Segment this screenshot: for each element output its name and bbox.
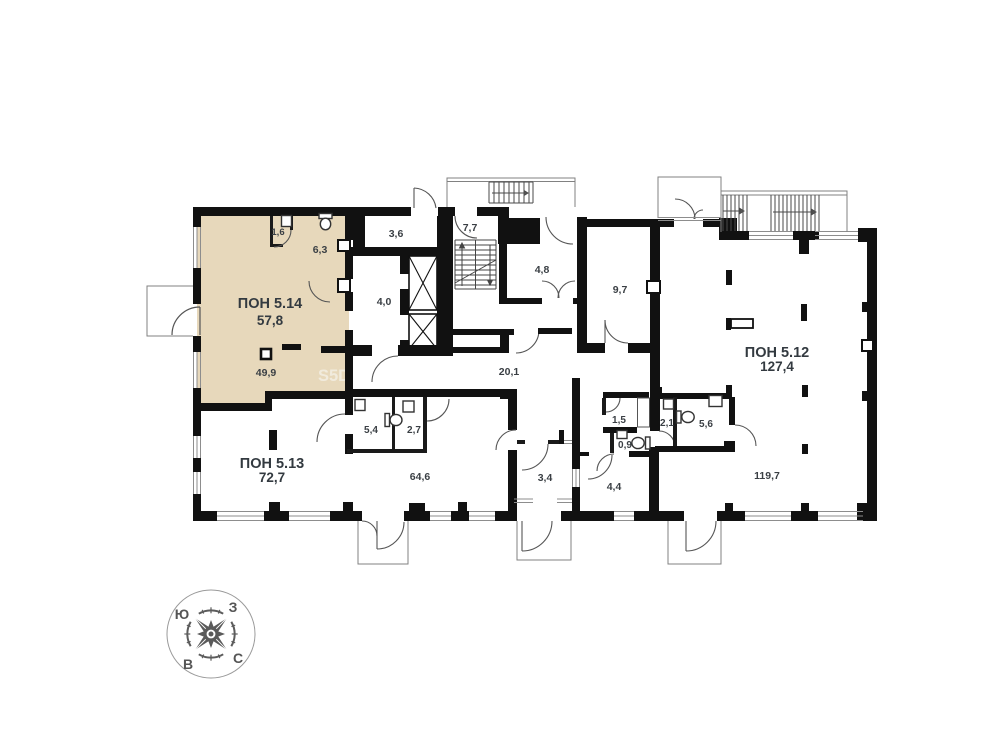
svg-text:В: В: [183, 656, 193, 672]
svg-text:5,6: 5,6: [699, 419, 713, 430]
svg-text:5,4: 5,4: [364, 425, 378, 436]
svg-text:1,5: 1,5: [612, 415, 626, 426]
svg-text:З: З: [229, 599, 238, 615]
svg-text:0,9: 0,9: [618, 440, 632, 451]
svg-text:119,7: 119,7: [754, 470, 780, 482]
svg-text:64,6: 64,6: [410, 471, 431, 483]
svg-text:3,4: 3,4: [538, 472, 553, 484]
svg-text:72,7: 72,7: [259, 470, 285, 485]
svg-text:57,8: 57,8: [257, 313, 284, 328]
svg-text:127,4: 127,4: [760, 359, 794, 374]
svg-text:2,1: 2,1: [660, 418, 674, 429]
svg-text:7,7: 7,7: [463, 222, 478, 234]
svg-text:4,8: 4,8: [535, 264, 550, 276]
svg-text:4,4: 4,4: [607, 481, 622, 493]
svg-text:1,6: 1,6: [271, 227, 284, 238]
svg-text:20,1: 20,1: [499, 366, 520, 378]
svg-text:3,6: 3,6: [389, 228, 404, 240]
svg-text:С: С: [233, 650, 243, 666]
svg-text:2,7: 2,7: [407, 425, 421, 436]
svg-text:4,0: 4,0: [377, 296, 392, 308]
svg-text:6,3: 6,3: [313, 244, 328, 256]
svg-text:Ю: Ю: [175, 606, 189, 622]
svg-text:49,9: 49,9: [256, 367, 277, 379]
svg-text:ПОН 5.14: ПОН 5.14: [238, 296, 302, 312]
svg-text:9,7: 9,7: [613, 284, 628, 296]
